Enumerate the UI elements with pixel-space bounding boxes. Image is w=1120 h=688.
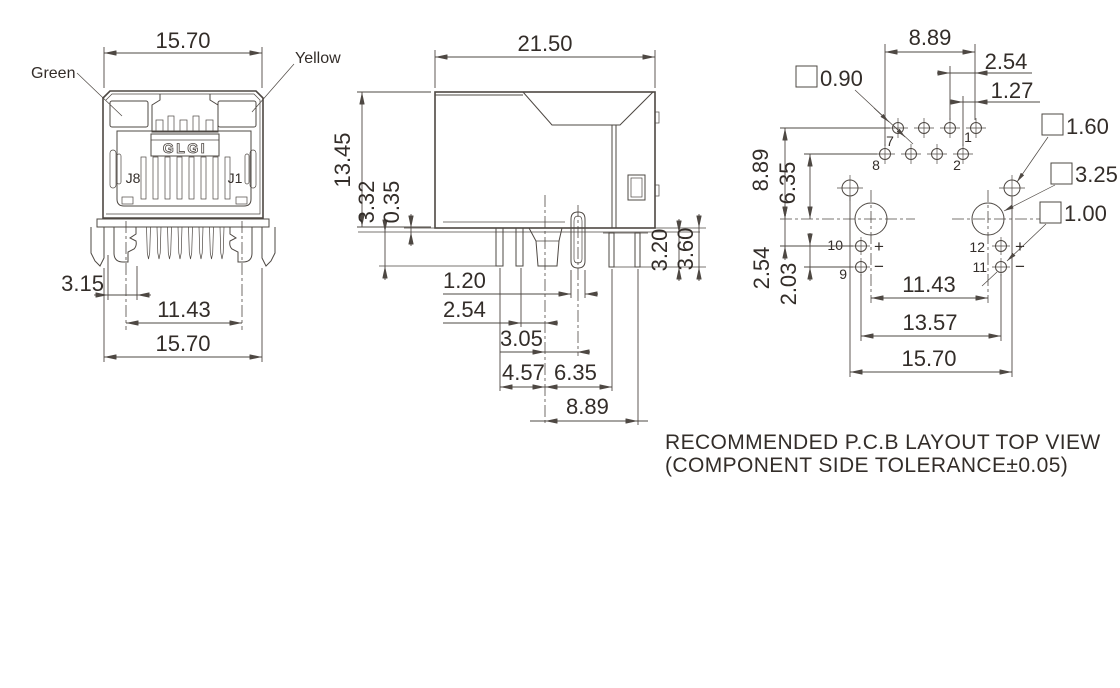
square-hole-symbol <box>1051 163 1072 184</box>
side-dim-pin2-value: 8.89 <box>566 394 609 419</box>
pin-label-12: 12 <box>969 239 985 255</box>
callout-led-hole-value: 1.00 <box>1064 201 1107 226</box>
polarity-plus-right: + <box>1015 237 1025 256</box>
side-dim-pin1-value: 6.35 <box>554 360 597 385</box>
side-view: 21.50 13.45 3.32 0.35 <box>330 31 706 425</box>
pcb-dim-pitch-value: 2.54 <box>985 49 1028 74</box>
latch-window-outer <box>628 175 645 200</box>
taper-post <box>529 228 562 266</box>
side-dim-chain: 1.20 2.54 3.05 4.57 6.35 8.89 <box>443 268 648 425</box>
snap-post-right <box>230 227 252 262</box>
front-dim-width-bottom-value: 15.70 <box>155 331 210 356</box>
jack-label-j8: J8 <box>126 170 141 186</box>
contact-comb <box>156 116 213 132</box>
pcb-dim-row-offset-value: 1.27 <box>991 78 1034 103</box>
drawing-canvas: GLGI J8 J1 Green Yellow <box>0 0 1120 688</box>
snap-post-left <box>114 227 136 262</box>
side-dim-standoff: 0.35 <box>379 181 443 246</box>
side-dim-pin-outer-value: 3.60 <box>673 228 698 271</box>
jack-label-j1: J1 <box>228 170 243 186</box>
pin-label-9: 9 <box>839 266 847 282</box>
pcb-layout-view: 7 1 8 2 10 9 12 11 + − + − 0.90 1.60 3.2… <box>665 25 1118 477</box>
pin-label-10: 10 <box>827 237 843 253</box>
rear-pin-1 <box>609 233 614 267</box>
front-dim-post-offset: 3.15 <box>61 255 151 300</box>
side-dim-tab-width-value: 1.20 <box>443 268 486 293</box>
leader-yellow <box>252 64 294 112</box>
pcb-dim-led-spacing-value: 13.57 <box>902 310 957 335</box>
side-dim-pin-inner-value: 3.20 <box>647 229 672 272</box>
plastic-post-2 <box>516 228 523 266</box>
leader-green <box>77 73 122 116</box>
connector-technical-drawing: GLGI J8 J1 Green Yellow <box>0 0 1120 688</box>
polarity-minus-left: − <box>874 257 884 276</box>
callout-signal-hole-value: 0.90 <box>820 66 863 91</box>
callout-locator-hole-value: 1.60 <box>1066 114 1109 139</box>
brand-text: GLGI <box>163 140 207 156</box>
latch-window-inner <box>631 178 642 197</box>
side-dim-depth: 21.50 <box>435 31 655 88</box>
plastic-post-1 <box>496 228 503 266</box>
callout-post-hole-value: 3.25 <box>1075 162 1118 187</box>
pcb-dim-rows-to-post: 8.89 <box>748 128 890 219</box>
front-dim-width-top: 15.70 <box>104 28 262 88</box>
side-dim-tab-pos-value: 3.05 <box>500 326 543 351</box>
pin-label-2: 2 <box>953 157 961 173</box>
pcb-dim-row-span-value: 8.89 <box>909 25 952 50</box>
base-flange <box>97 219 269 227</box>
pcb-dim-row2-to-post-value: 6.35 <box>775 162 800 205</box>
pcb-dim-row2-to-post: 6.35 <box>775 154 877 219</box>
locator-holes <box>837 175 1025 201</box>
side-dim-standoff-value: 0.35 <box>379 181 404 224</box>
led-window-yellow <box>218 101 256 127</box>
front-dim-width-top-value: 15.70 <box>155 28 210 53</box>
side-dim-height-value: 13.45 <box>330 132 355 187</box>
pcb-dim-led-pitch-value: 2.03 <box>776 263 801 306</box>
front-dim-post-offset-value: 3.15 <box>61 271 104 296</box>
polarity-minus-right: − <box>1015 257 1025 276</box>
front-dim-post-spacing-value: 11.43 <box>157 297 210 322</box>
square-hole-symbol <box>796 66 817 87</box>
led-label-green: Green <box>31 65 75 82</box>
front-dim-post-spacing: 11.43 <box>126 297 242 323</box>
polarity-plus-left: + <box>874 237 884 256</box>
front-solder-pins <box>147 227 225 259</box>
led-label-yellow: Yellow <box>295 50 341 67</box>
side-dim-depth-value: 21.50 <box>517 31 572 56</box>
pcb-dim-post-spacing-value: 11.43 <box>902 272 955 297</box>
top-chamfer-notch <box>523 92 653 125</box>
pcb-dim-post-spacing: 11.43 <box>871 272 988 298</box>
pin-label-7: 7 <box>886 133 894 149</box>
pin-label-1: 1 <box>964 129 972 145</box>
pcb-dim-locator-spacing-value: 15.70 <box>901 346 956 371</box>
pcb-note-line2: (COMPONENT SIDE TOLERANCE±0.05) <box>665 454 1068 477</box>
pcb-note-line1: RECOMMENDED P.C.B LAYOUT TOP VIEW <box>665 431 1101 454</box>
latch-opening <box>152 94 218 132</box>
front-view: GLGI J8 J1 Green Yellow <box>31 28 341 362</box>
shield-tab-right <box>262 227 275 266</box>
led-window-green <box>110 101 148 127</box>
square-hole-symbol <box>1042 114 1063 135</box>
square-hole-symbol <box>1040 202 1061 223</box>
shield-tab-left <box>91 227 104 266</box>
side-dim-post-length-value: 3.32 <box>354 181 379 224</box>
side-body-outline <box>435 92 655 228</box>
side-dim-post2-value: 2.54 <box>443 297 486 322</box>
side-dim-post-length: 3.32 <box>354 181 497 280</box>
callout-signal-hole: 0.90 <box>796 66 913 144</box>
side-dim-pin-lengths: 3.20 3.60 <box>614 214 706 281</box>
pin-label-11: 11 <box>972 259 987 275</box>
rear-pin-2 <box>635 233 640 267</box>
pin-label-8: 8 <box>872 157 880 173</box>
pcb-dim-rows-to-post-value: 8.89 <box>748 149 773 192</box>
side-dim-post1-value: 4.57 <box>502 360 545 385</box>
pcb-dim-post-to-led-value: 2.54 <box>749 247 774 290</box>
